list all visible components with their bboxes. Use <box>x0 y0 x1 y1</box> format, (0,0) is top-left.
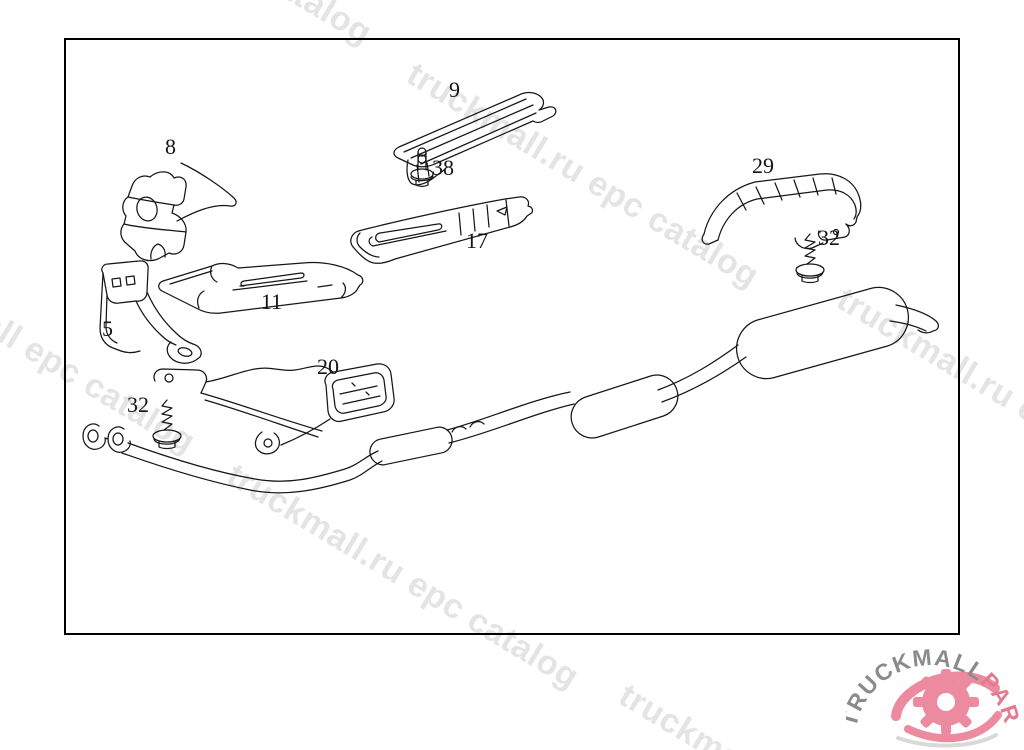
exhaust-assembly-drawing <box>83 287 938 492</box>
muffler <box>737 287 909 378</box>
screw-32-left-drawing <box>153 400 181 449</box>
part-label-9[interactable]: 9 <box>449 79 460 101</box>
part-8-drawing <box>121 163 236 261</box>
part-8-pointer <box>177 163 236 221</box>
part-17-drawing <box>351 197 533 263</box>
part-label-32-left[interactable]: 32 <box>127 394 149 416</box>
catalog-page: truckmall.ru epc catalog truckmall.ru ep… <box>0 0 1024 750</box>
part-label-17[interactable]: 17 <box>466 230 488 252</box>
part-label-38[interactable]: 38 <box>432 157 454 179</box>
part-label-11[interactable]: 11 <box>261 291 282 313</box>
part-5-drawing <box>100 261 201 363</box>
tailpipe <box>896 305 938 333</box>
part-label-32-right[interactable]: 32 <box>818 227 840 249</box>
part-label-8[interactable]: 8 <box>165 136 176 158</box>
catalytic-converter <box>571 375 678 438</box>
parts-diagram-svg <box>0 0 1024 750</box>
truckmall-logo: TRUCKMALLPARTS <box>846 644 1022 750</box>
part-label-5[interactable]: 5 <box>102 318 113 340</box>
front-flanges <box>83 424 130 452</box>
part-9-drawing <box>394 93 556 185</box>
part-label-29[interactable]: 29 <box>752 155 774 177</box>
resonator <box>370 427 452 465</box>
part-label-20[interactable]: 20 <box>317 356 339 378</box>
part-20-drawing <box>154 364 394 454</box>
